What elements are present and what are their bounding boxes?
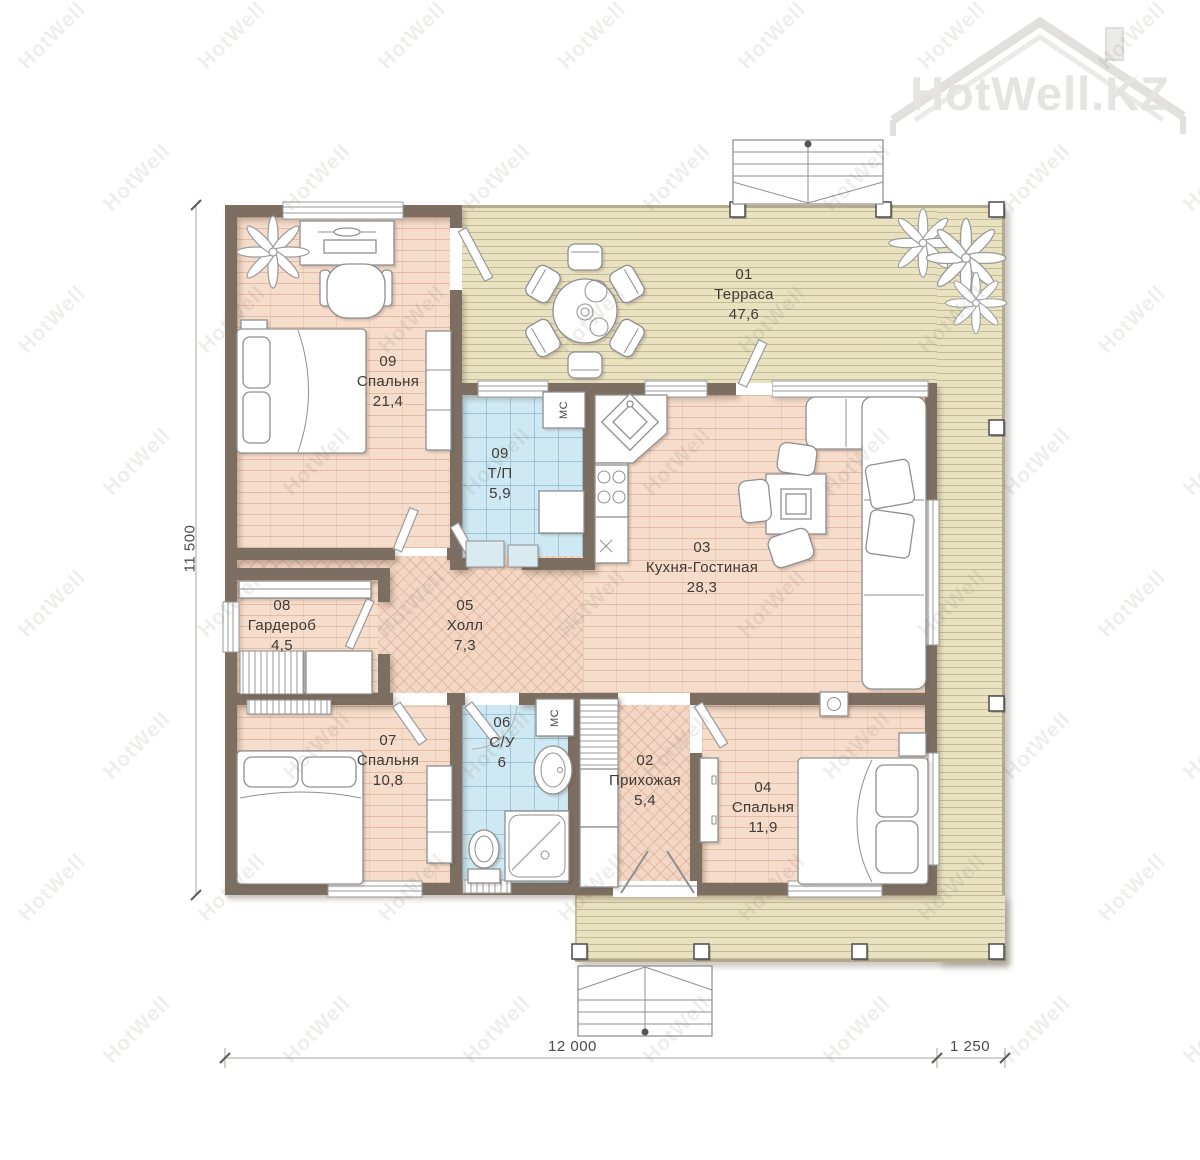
- room-name: Спальня: [732, 798, 794, 818]
- room-number: 07: [357, 731, 419, 751]
- room-label-entry-hall: 02 Прихожая 5,4: [609, 751, 681, 811]
- floor-plan-page: HotWell.KZ: [0, 0, 1200, 1160]
- room-label-tech-room: 09 Т/П 5,9: [487, 444, 512, 504]
- room-number: 06: [489, 713, 514, 733]
- dimension-left: 11 500: [182, 514, 199, 584]
- room-number: 01: [714, 265, 774, 285]
- room-name: Холл: [447, 616, 484, 636]
- room-label-kitchen-living: 03 Кухня-Гостиная 28,3: [646, 538, 758, 598]
- washer-label-tech-room: МС: [543, 392, 585, 428]
- room-area: 10,8: [357, 771, 419, 791]
- room-label-terrace: 01 Терраса 47,6: [714, 265, 774, 325]
- room-area: 4,5: [248, 636, 316, 656]
- room-area: 11,9: [732, 818, 794, 838]
- room-label-bathroom: 06 С/У 6: [489, 713, 514, 773]
- room-label-bedroom9: 09 Спальня 21,4: [357, 352, 419, 412]
- room-name: Гардероб: [248, 616, 316, 636]
- room-area: 5,9: [487, 484, 512, 504]
- room-label-hall: 05 Холл 7,3: [447, 596, 484, 656]
- room-area: 21,4: [357, 392, 419, 412]
- washer-label-bathroom: МС: [536, 699, 574, 736]
- room-name: С/У: [489, 733, 514, 753]
- room-number: 09: [487, 444, 512, 464]
- room-name: Кухня-Гостиная: [646, 558, 758, 578]
- room-name: Прихожая: [609, 771, 681, 791]
- room-label-bedroom7: 07 Спальня 10,8: [357, 731, 419, 791]
- room-number: 02: [609, 751, 681, 771]
- room-number: 05: [447, 596, 484, 616]
- room-label-bedroom4: 04 Спальня 11,9: [732, 778, 794, 838]
- room-number: 09: [357, 352, 419, 372]
- dimension-bottom-main: 12 000: [548, 1038, 597, 1055]
- room-area: 7,3: [447, 636, 484, 656]
- dimension-bottom-right: 1 250: [950, 1038, 990, 1055]
- room-name: Спальня: [357, 751, 419, 771]
- room-number: 04: [732, 778, 794, 798]
- room-name: Спальня: [357, 372, 419, 392]
- room-name: Терраса: [714, 285, 774, 305]
- room-number: 03: [646, 538, 758, 558]
- room-area: 47,6: [714, 305, 774, 325]
- room-area: 6: [489, 753, 514, 773]
- room-area: 28,3: [646, 578, 758, 598]
- room-area: 5,4: [609, 791, 681, 811]
- room-name: Т/П: [487, 464, 512, 484]
- room-label-wardrobe: 08 Гардероб 4,5: [248, 596, 316, 656]
- room-number: 08: [248, 596, 316, 616]
